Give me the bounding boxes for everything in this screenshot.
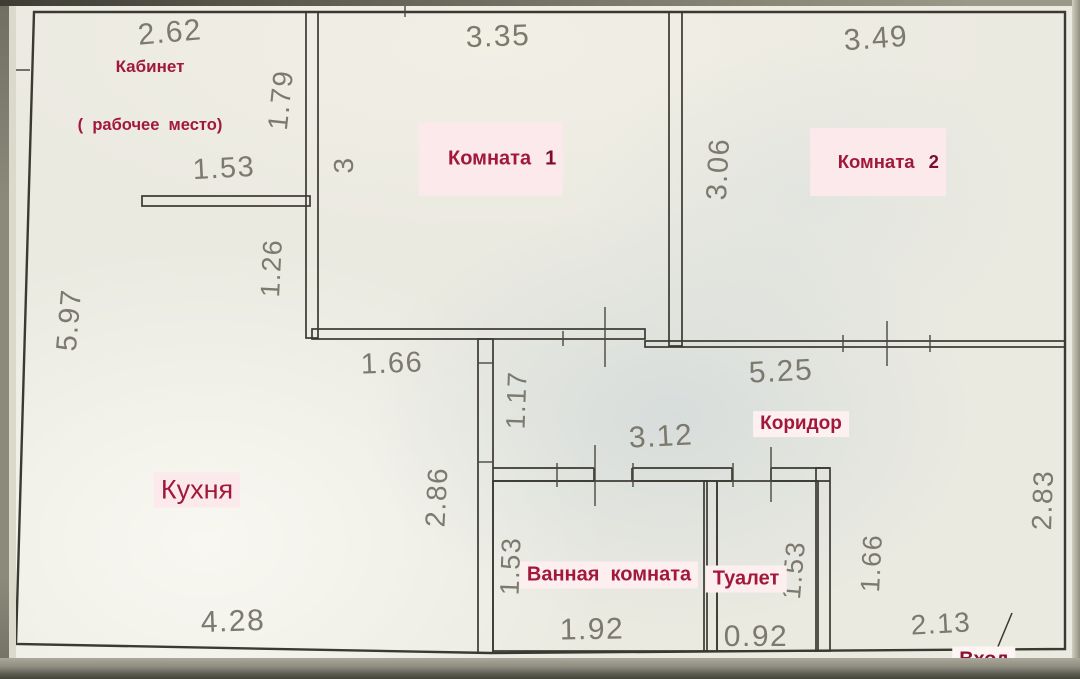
dim-kitchen-top: 1.66 (360, 348, 423, 379)
dim-kitchen-depth: 2.86 (421, 466, 452, 528)
dim-vannaya-width: 1.92 (560, 614, 625, 645)
scan-border-left-light (9, 0, 16, 679)
dim-entry-depth: 1.66 (857, 533, 887, 593)
room-label-komnata1: Комната1 (419, 123, 563, 196)
dim-komnata1-depth: 3 (330, 156, 358, 173)
dim-tualet-width: 0.92 (724, 622, 788, 652)
dim-komnata2-depth: 3.06 (703, 137, 735, 201)
komnata1-text: Комната (448, 148, 531, 170)
room-label-koridor: Коридор (753, 411, 849, 437)
room-label-vannaya: Ванная комната (520, 562, 698, 589)
dim-wall-segment: 1.26 (257, 238, 287, 298)
dim-entry-width: 2.13 (910, 608, 972, 639)
room-label-komnata2: Комната2 (810, 128, 946, 196)
scan-border-right (1072, 0, 1080, 679)
komnata1-number: 1 (545, 148, 556, 170)
room-label-kuhnya: Кухня (154, 472, 240, 507)
room-label-tualet: Туалет (706, 566, 787, 593)
scan-border-top (0, 0, 1080, 6)
scan-border-left (0, 0, 9, 679)
dim-koridor-neck: 1.17 (502, 370, 531, 429)
dim-kabinet-depth: 1.79 (264, 68, 298, 131)
dim-kitchen-width: 4.28 (200, 606, 265, 638)
dim-komnata2-width: 3.49 (843, 22, 909, 56)
floorplan-scan: 2.62 3.35 3.49 1.53 1.66 5.25 3.12 1.92 … (0, 0, 1080, 679)
dim-koridor-length: 5.25 (748, 355, 814, 388)
dim-koridor-width: 3.12 (628, 420, 694, 453)
scan-border-bottom (0, 658, 1080, 679)
entrance-door-swing (997, 613, 1012, 649)
komnata2-text: Комната (838, 151, 915, 172)
room-label-kabinet: Кабинет ( рабочее место) (78, 18, 223, 174)
dim-komnata1-width: 3.35 (465, 21, 530, 53)
dim-left-wall-height: 5.97 (53, 288, 87, 353)
kabinet-subtitle: ( рабочее место) (78, 116, 223, 135)
dim-right-wall-height: 2.83 (1028, 469, 1058, 530)
kabinet-title: Кабинет (78, 57, 223, 77)
komnata2-number: 2 (929, 151, 939, 172)
